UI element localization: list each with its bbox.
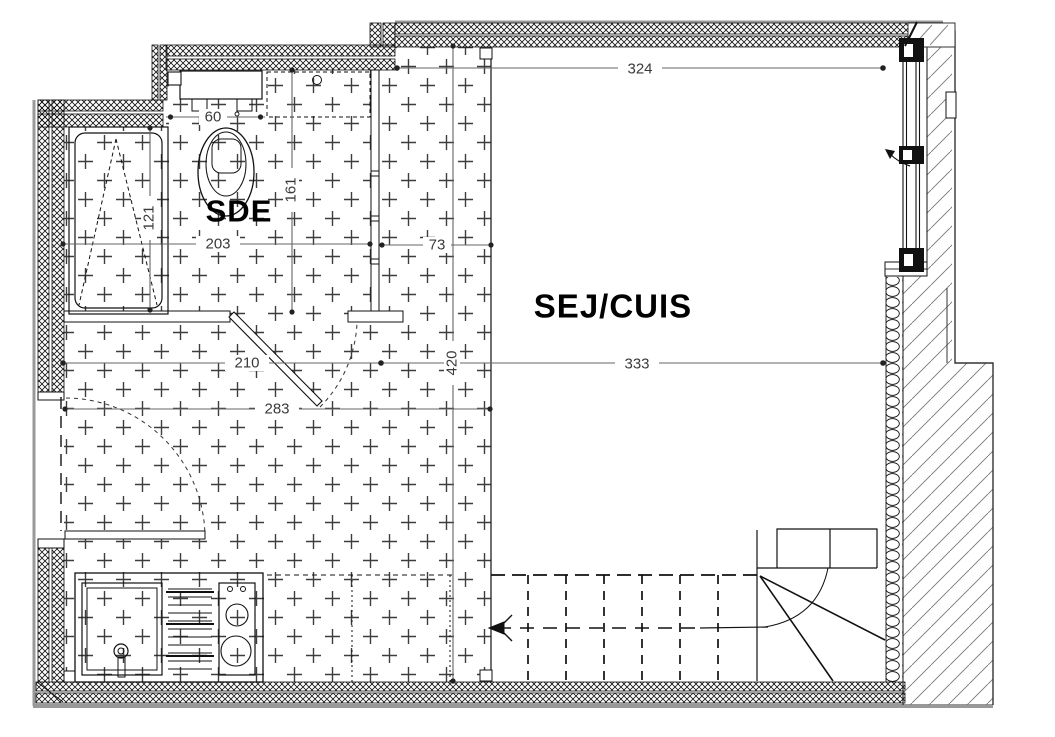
dim-lower-left-width: 210 [234, 355, 259, 372]
dim-living-width: 333 [624, 356, 649, 373]
wall-top-shower [38, 100, 163, 111]
room-label-bathroom: SDE [206, 194, 273, 229]
corner-post [64, 671, 75, 682]
wall-top-sde [166, 45, 395, 56]
floor-plan: 324 60 203 73 210 333 283 161 121 420 SD… [0, 0, 1055, 737]
window [885, 22, 924, 272]
stair-landing [777, 529, 877, 568]
door-jamb-top [38, 392, 64, 400]
dim-hall-depth: 420 [444, 350, 461, 375]
door-leaf-open [65, 531, 205, 539]
dim-entry-width: 283 [264, 401, 289, 418]
dim-wc-width: 60 [205, 109, 222, 126]
sde-south-wall [64, 311, 230, 322]
winder-treads [760, 576, 885, 681]
dim-hall-strip-width: 73 [429, 237, 446, 254]
wall-step-connector [152, 45, 158, 100]
wall-left-upper [38, 100, 49, 392]
insulation-strip [886, 277, 903, 682]
wall-step-connector-2 [370, 23, 381, 47]
wall-notch [946, 92, 956, 118]
dim-bathroom-depth: 161 [283, 177, 300, 202]
toilet-cistern [180, 71, 262, 99]
dim-shower-length: 121 [141, 205, 158, 230]
dim-bathroom-width: 203 [205, 236, 230, 253]
post-top [480, 48, 492, 59]
dim-top-width: 324 [627, 61, 652, 78]
staircase [489, 529, 885, 681]
sde-south-wall-jamb [348, 311, 403, 322]
post-bottom [480, 670, 492, 681]
wall-left-lower [38, 548, 49, 682]
floor-plan-drawing: 324 60 203 73 210 333 283 161 121 420 SD… [0, 0, 1055, 737]
glass-partition [371, 70, 379, 311]
masonry-wall-right [885, 23, 993, 705]
wall-bottom [36, 682, 905, 691]
door-jamb-bottom [38, 539, 64, 548]
wall-top-main [395, 23, 908, 34]
room-label-living-kitchen: SEJ/CUIS [534, 288, 692, 325]
